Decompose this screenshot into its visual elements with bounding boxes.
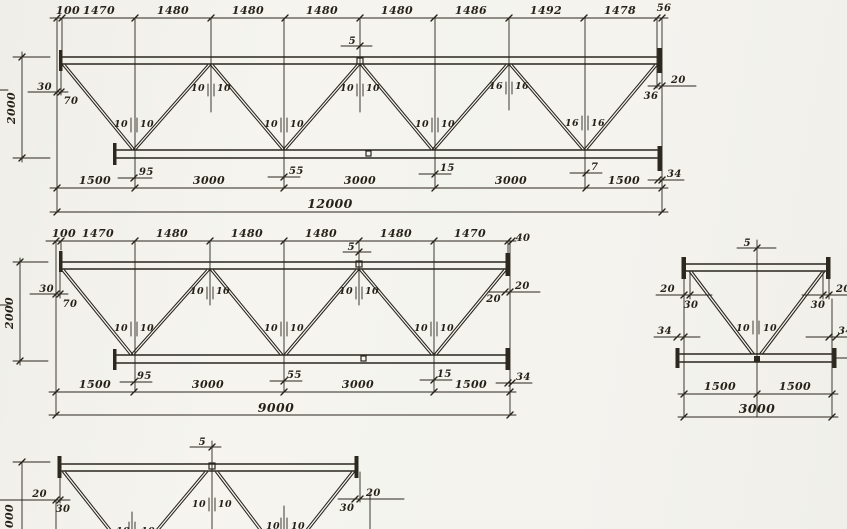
web-label: 10 (217, 83, 231, 94)
end-plate (658, 48, 663, 73)
bottom-chord (116, 355, 506, 363)
offset-ticks (53, 444, 363, 503)
dim-label: 3000 (192, 378, 224, 391)
offset-label: 20 (485, 294, 501, 305)
web-diagonals (63, 472, 355, 529)
bottom-chord (116, 150, 657, 158)
end-plate (113, 143, 117, 165)
node-label: 55 (289, 166, 304, 177)
offset-label: 20 (670, 75, 686, 86)
height-label: 2000 (5, 92, 18, 125)
offset-label: 34 (657, 326, 672, 337)
dim-label: 3000 (495, 174, 527, 187)
end-plate (59, 50, 63, 71)
web-label: 10 (763, 323, 777, 334)
web-label: 10 (216, 286, 230, 297)
dim-label: 1480 (381, 4, 413, 17)
dim-label: 1470 (83, 4, 115, 17)
dim-label: 1500 (455, 378, 487, 391)
dim-label: 56 (657, 3, 672, 14)
web-label: 10 (264, 119, 278, 130)
web-label: 16 (515, 81, 529, 92)
dim-label: 1480 (231, 227, 263, 240)
web-label: 10 (218, 499, 232, 510)
top-chord (686, 264, 827, 271)
top-chord (61, 262, 506, 269)
offset-label: 20 (835, 284, 847, 295)
joint-gap-ticks (129, 498, 287, 529)
total-label: 3000 (739, 401, 775, 416)
offset-label: 20 (514, 281, 530, 292)
truss-12000-drawing: 100 1470 1480 1480 1480 1480 1486 1492 1… (0, 3, 696, 215)
flag-label: 5 (348, 242, 355, 253)
web-label: 16 (489, 81, 503, 92)
web-label: 10 (264, 323, 278, 334)
node-label: 95 (139, 167, 154, 178)
web-label: 10 (340, 83, 354, 94)
node-label: 15 (440, 163, 455, 174)
end-plate (506, 253, 511, 276)
web-label: 10 (114, 119, 128, 130)
center-node-marker (754, 356, 760, 362)
offset-label: 30 (39, 284, 54, 295)
web-label: 10 (291, 521, 305, 529)
total-label: 12000 (307, 196, 353, 211)
web-label: 10 (290, 119, 304, 130)
extension-lines (0, 241, 510, 415)
end-plate (58, 456, 62, 478)
dim-label: 1480 (380, 227, 412, 240)
midspan-node-marker (361, 356, 366, 361)
dim-label: 1480 (232, 4, 264, 17)
node-label: 34 (667, 169, 682, 180)
offset-label: 30 (340, 503, 355, 514)
offset-label: 70 (63, 299, 78, 310)
end-plate (113, 349, 117, 370)
node-label: 7 (591, 162, 598, 173)
dim-label: 1500 (79, 378, 111, 391)
drawing-sheet: 100 1470 1480 1480 1480 1480 1486 1492 1… (0, 0, 847, 529)
offset-label: 70 (64, 96, 79, 107)
end-plate (676, 348, 680, 368)
node-label: 55 (287, 370, 302, 381)
dim-label: 1478 (604, 4, 636, 17)
end-plate (826, 257, 831, 279)
dim-label: 1480 (157, 4, 189, 17)
web-label: 16 (591, 118, 605, 129)
offset-ticks (674, 245, 839, 340)
truss-9000-drawing: 100 1470 1480 1480 1480 1480 1470 40 5 2… (0, 227, 540, 418)
midspan-node-marker (366, 151, 371, 156)
dim-label: 1480 (306, 4, 338, 17)
node-label: 15 (437, 369, 452, 380)
dim-label: 40 (516, 233, 531, 244)
web-label: 10 (290, 323, 304, 334)
flag-label: 5 (349, 36, 356, 47)
dim-label: 1480 (305, 227, 337, 240)
dim-label: 1492 (530, 4, 562, 17)
web-label: 10 (415, 119, 429, 130)
web-label: 10 (191, 83, 205, 94)
offset-label: 30 (811, 300, 826, 311)
web-label: 10 (114, 323, 128, 334)
offset-label: 20 (659, 284, 675, 295)
dim-label: 1500 (608, 174, 640, 187)
offset-label: 20 (31, 489, 47, 500)
offset-label: 30 (37, 82, 52, 93)
web-label: 10 (440, 323, 454, 334)
dim-label: 1470 (82, 227, 114, 240)
truss-drawing-canvas: 100 1470 1480 1480 1480 1480 1486 1492 1… (0, 0, 847, 529)
web-label: 16 (565, 118, 579, 129)
height-dimension-line (13, 52, 50, 162)
offset-label: 30 (684, 300, 699, 311)
dim-label: 3000 (342, 378, 374, 391)
dim-label: 1500 (79, 174, 111, 187)
offset-label: 20 (365, 488, 381, 499)
web-label: 10 (441, 119, 455, 130)
dim-label: 1500 (704, 380, 736, 393)
offset-label: 36 (644, 91, 659, 102)
end-plate (59, 251, 63, 272)
dim-label: 1486 (455, 4, 487, 17)
flag-label: 5 (744, 238, 751, 249)
end-plate (355, 456, 359, 478)
web-label: 10 (366, 83, 380, 94)
web-label: 10 (339, 286, 353, 297)
end-plate (658, 146, 663, 171)
truss-6000-drawing: 5 20 30 20 30 10 10 2000 10 10 10 10 (0, 437, 404, 529)
node-label: 34 (516, 372, 531, 383)
height-label: 2000 (3, 504, 16, 529)
web-label: 10 (140, 119, 154, 130)
height-dimension-line (13, 258, 48, 365)
dim-label: 100 (52, 227, 76, 240)
web-label: 10 (266, 521, 280, 529)
dim-label: 1470 (454, 227, 486, 240)
dim-label: 3000 (193, 174, 225, 187)
end-plate (833, 348, 837, 368)
node-label: 95 (137, 371, 152, 382)
web-label: 10 (414, 323, 428, 334)
offset-label: 34 (838, 326, 847, 337)
dim-label: 100 (56, 4, 80, 17)
flag-label: 5 (199, 437, 206, 448)
web-label: 10 (190, 286, 204, 297)
height-label: 2000 (3, 297, 16, 330)
truss-3000-drawing: 5 20 30 34 20 30 34 10 10 1500 1500 3000 (654, 238, 847, 420)
dim-label: 1480 (156, 227, 188, 240)
web-label: 10 (192, 499, 206, 510)
web-label: 10 (736, 323, 750, 334)
end-plate (506, 348, 511, 370)
total-label: 9000 (258, 400, 294, 415)
end-plate (682, 257, 687, 279)
joint-gap-ticks (753, 321, 759, 334)
web-label: 10 (365, 286, 379, 297)
offset-label: 30 (56, 504, 71, 515)
dim-label: 3000 (344, 174, 376, 187)
web-label: 10 (140, 323, 154, 334)
dim-label: 1500 (779, 380, 811, 393)
